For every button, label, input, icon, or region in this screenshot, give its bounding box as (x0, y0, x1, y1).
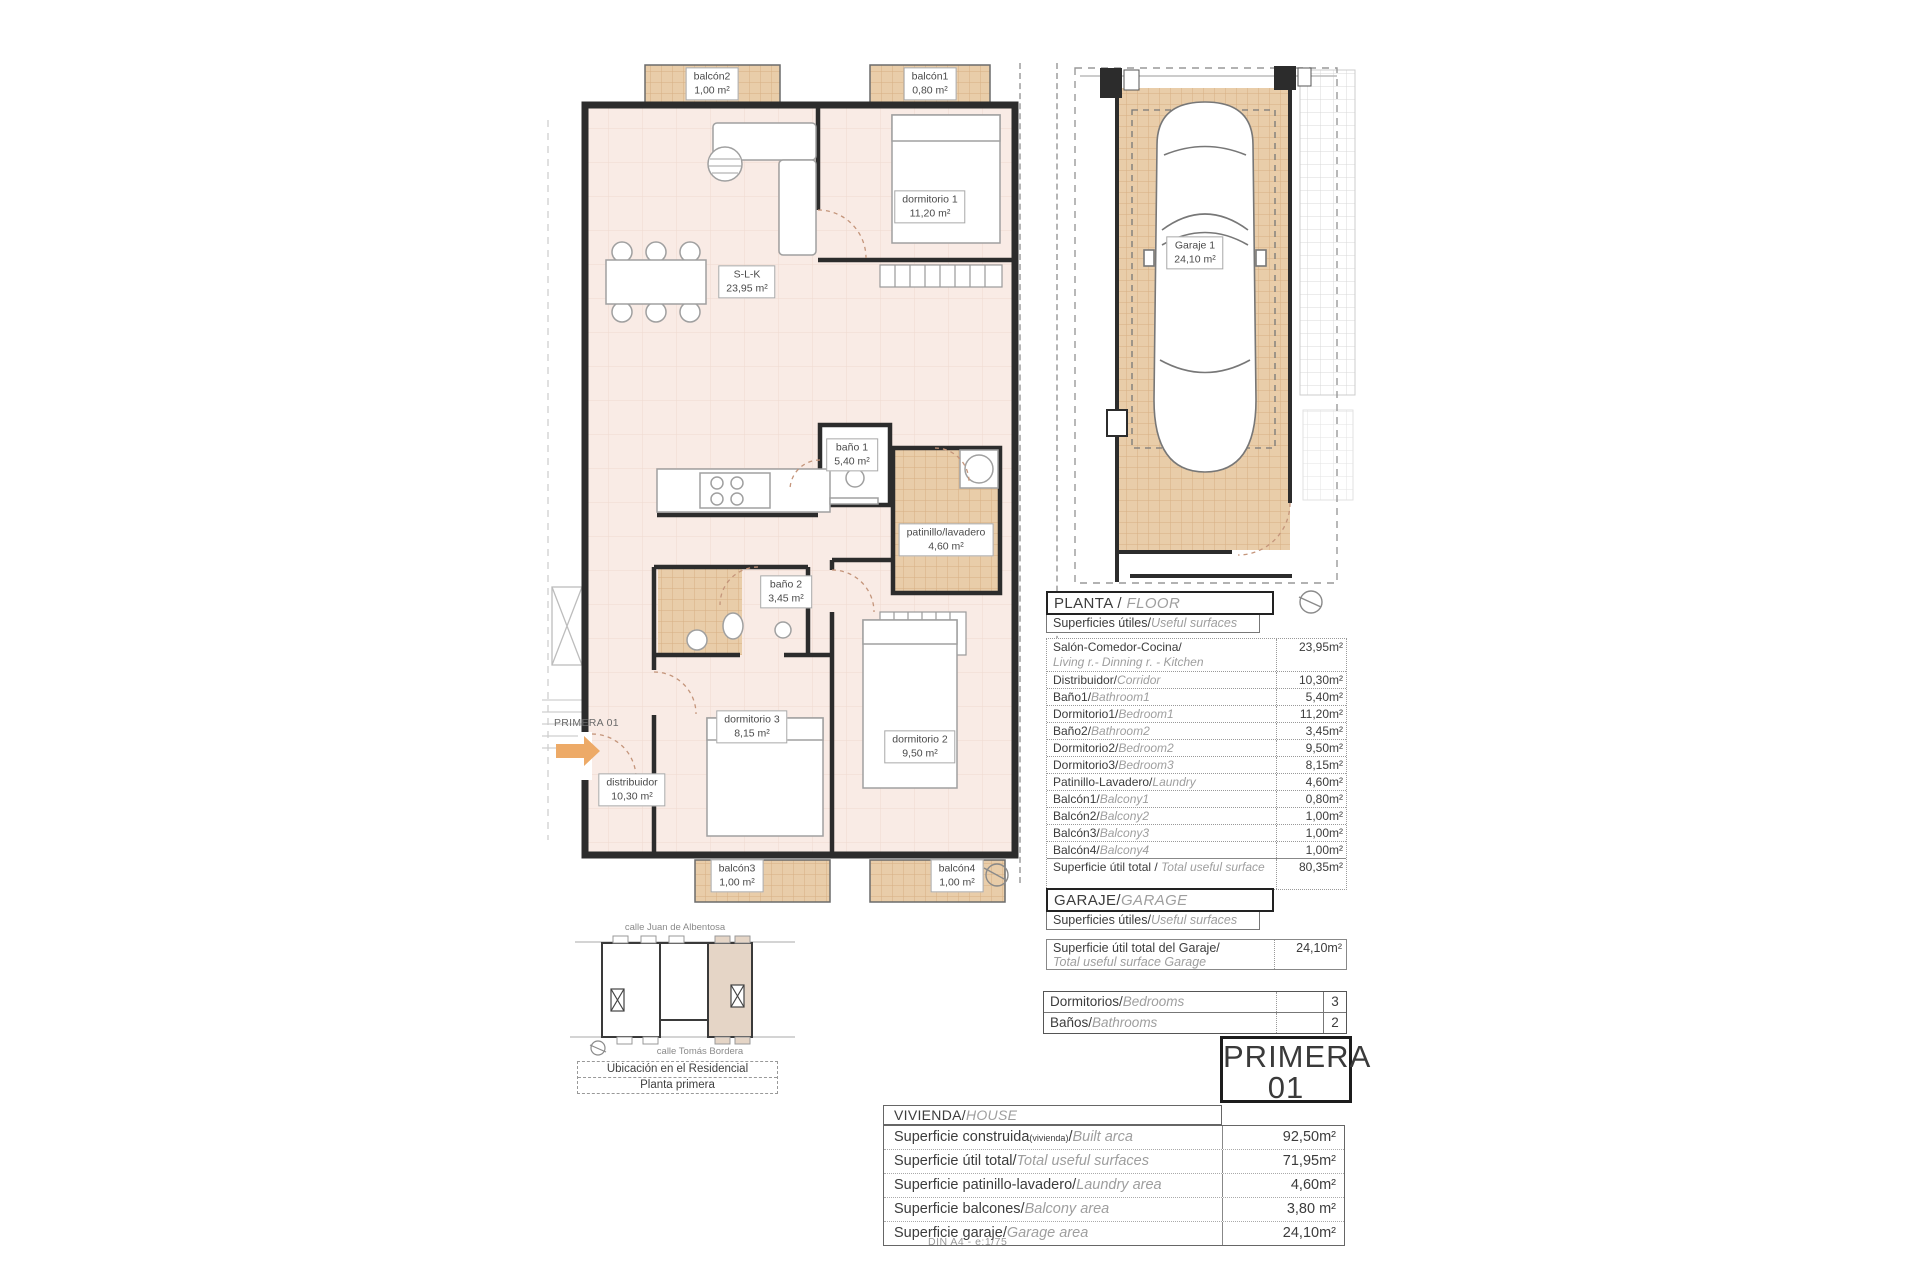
vivienda-table: Superficie construida(vivienda)/Built ar… (883, 1125, 1345, 1246)
table-row: Dormitorio3/Bedroom38,15m² (1047, 756, 1346, 773)
row-value: 23,95m² (1277, 639, 1346, 671)
room-label-balcon3: balcón31,00 m² (711, 859, 764, 892)
location-caption: Ubicación en el Residencial Planta prime… (577, 1061, 778, 1094)
toilet (723, 613, 743, 639)
table-row: Balcón2/Balcony21,00m² (1047, 807, 1346, 824)
planta-header: PLANTA / FLOOR (1046, 591, 1274, 615)
counts-table: Dormitorios/Bedrooms 3 Baños/Bathrooms 2 (1043, 991, 1347, 1034)
planta-subheader: Superficies útiles/Useful surfaces (1046, 615, 1260, 633)
vivienda-header: VIVIENDA/HOUSE (883, 1105, 1222, 1125)
room-label-bano1: baño 15,40 m² (826, 438, 878, 471)
north-indicator-icon (590, 1041, 606, 1055)
dining-table (606, 260, 706, 304)
table-row: Baños/Bathrooms 2 (1044, 1012, 1346, 1033)
table-row: Distribuidor/Corridor10,30m² (1047, 671, 1346, 688)
table-row: Dormitorios/Bedrooms 3 (1044, 992, 1346, 1012)
room-label-bano2: baño 23,45 m² (760, 575, 812, 608)
room-label-garaje1: Garaje 124,10 m² (1166, 236, 1223, 269)
vivienda-section: VIVIENDA/HOUSE Superficie construida(viv… (883, 1105, 1345, 1246)
street-label-top: calle Juan de Albentosa (595, 922, 755, 933)
terrace-grid (1300, 70, 1355, 395)
garage-plan-drawing (1060, 60, 1360, 590)
room-label-slk: S-L-K23,95 m² (718, 265, 775, 298)
room-label-dormitorio1: dormitorio 111,20 m² (894, 190, 965, 223)
row-value: 24,10m² (1275, 940, 1346, 969)
unit-badge-line2: 01 (1223, 1072, 1349, 1103)
room-label-balcon1: balcón10,80 m² (904, 67, 957, 100)
bathrooms-count: 2 (1324, 1013, 1346, 1033)
common-area-hints (542, 120, 582, 840)
garaje-section: GARAJE/GARAGE Superficies útiles/Useful … (1046, 888, 1347, 970)
table-row: Salón-Comedor-Cocina/Living r.- Dinning … (1047, 639, 1346, 671)
total-row: Superficie útil total / Total useful sur… (1047, 858, 1346, 889)
table-row: Superficie balcones/Balcony area3,80 m² (884, 1197, 1344, 1221)
table-row: Superficie construida(vivienda)/Built ar… (884, 1126, 1344, 1149)
separator-dashed-line (1019, 63, 1021, 883)
round-table (708, 147, 742, 181)
row-value: 92,50m² (1223, 1126, 1344, 1149)
wall-niche (1107, 410, 1127, 436)
plan-unit-text: PRIMERA 01 (554, 717, 619, 729)
garaje-total-row: Superficie útil total del Garaje/Total u… (1046, 939, 1347, 970)
table-row: Balcón1/Balcony10,80m² (1047, 790, 1346, 807)
room-label-distribuidor: distribuidor10,30 m² (598, 773, 665, 806)
table-row: Baño1/Bathroom15,40m² (1047, 688, 1346, 705)
location-caption-line1: Ubicación en el Residencial (578, 1062, 777, 1077)
room-label-dormitorio3: dormitorio 38,15 m² (716, 710, 787, 743)
unit-badge-line1: PRIMERA (1223, 1041, 1349, 1072)
location-caption-line2: Planta primera (578, 1077, 777, 1093)
table-row: Baño2/Bathroom23,45m² (1047, 722, 1346, 739)
room-label-dormitorio2: dormitorio 29,50 m² (884, 730, 955, 763)
garaje-subheader: Superficies útiles/Useful surfaces (1046, 912, 1260, 930)
planta-table: Salón-Comedor-Cocina/Living r.- Dinning … (1046, 638, 1347, 890)
room-label-balcon2: balcón21,00 m² (686, 67, 739, 100)
car-icon (1144, 102, 1266, 472)
scale-note: DIN A4 - e:1/75 (928, 1236, 1007, 1248)
street-label-bottom: calle Tomás Bordera (630, 1046, 770, 1057)
table-row: Superficie patinillo-lavadero/Laundry ar… (884, 1173, 1344, 1197)
room-label-patinillo: patinillo/lavadero4,60 m² (899, 523, 994, 556)
floor-plan-sheet: balcón21,00 m² balcón10,80 m² dormitorio… (0, 0, 1920, 1280)
garaje-header: GARAJE/GARAGE (1046, 888, 1274, 912)
table-row: Balcón3/Balcony31,00m² (1047, 824, 1346, 841)
table-row: Balcón4/Balcony41,00m² (1047, 841, 1346, 858)
highlighted-unit (708, 943, 752, 1037)
table-row: Dormitorio2/Bedroom29,50m² (1047, 739, 1346, 756)
table-row: Patinillo-Lavadero/Laundry4,60m² (1047, 773, 1346, 790)
table-row: Dormitorio1/Bedroom111,20m² (1047, 705, 1346, 722)
room-label-balcon4: balcón41,00 m² (931, 859, 984, 892)
washbasin (846, 469, 864, 487)
planta-section: PLANTA / FLOOR Superficies útiles/Useful… (1046, 591, 1347, 890)
unit-badge: PRIMERA 01 (1220, 1036, 1352, 1103)
table-row: Superficie útil total/Total useful surfa… (884, 1149, 1344, 1173)
bedrooms-count: 3 (1324, 992, 1346, 1012)
